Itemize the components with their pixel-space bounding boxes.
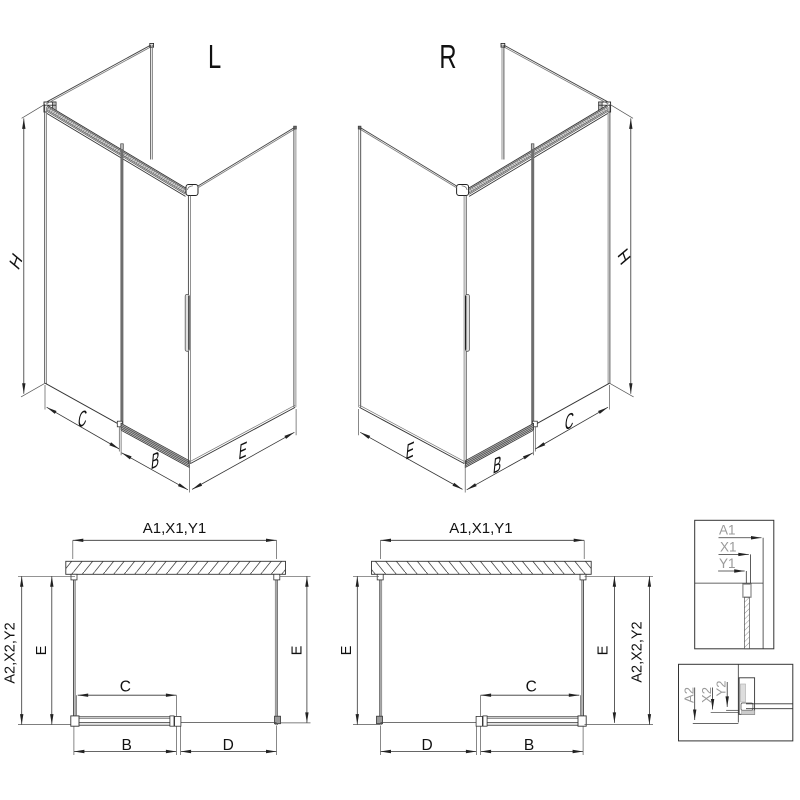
svg-text:X1: X1 [720, 539, 737, 554]
svg-text:A2,X2,Y2: A2,X2,Y2 [3, 622, 19, 683]
svg-text:Y2: Y2 [713, 681, 728, 697]
svg-text:L: L [208, 40, 221, 77]
svg-text:E: E [339, 645, 355, 655]
svg-text:A1,X1,Y1: A1,X1,Y1 [449, 520, 512, 537]
svg-text:B: B [122, 737, 132, 754]
svg-text:Y1: Y1 [719, 556, 736, 571]
svg-text:B: B [524, 737, 534, 754]
svg-text:A1: A1 [719, 523, 736, 538]
svg-text:B: B [492, 450, 503, 479]
svg-text:X2: X2 [699, 687, 714, 703]
svg-text:A2,X2,Y2: A2,X2,Y2 [630, 621, 646, 682]
svg-text:H: H [6, 249, 26, 274]
svg-text:A1,X1,Y1: A1,X1,Y1 [143, 520, 206, 537]
svg-text:D: D [223, 737, 234, 754]
svg-text:E: E [405, 436, 416, 465]
svg-text:E: E [238, 436, 249, 465]
svg-text:B: B [150, 445, 161, 474]
svg-text:C: C [564, 406, 575, 435]
svg-text:E: E [596, 645, 612, 655]
svg-text:C: C [120, 679, 131, 696]
svg-text:A2: A2 [681, 687, 696, 703]
svg-text:E: E [34, 645, 50, 655]
svg-text:C: C [526, 679, 537, 696]
svg-text:R: R [439, 40, 456, 77]
svg-text:D: D [421, 737, 432, 754]
svg-text:C: C [77, 404, 88, 433]
svg-text:E: E [290, 645, 306, 655]
